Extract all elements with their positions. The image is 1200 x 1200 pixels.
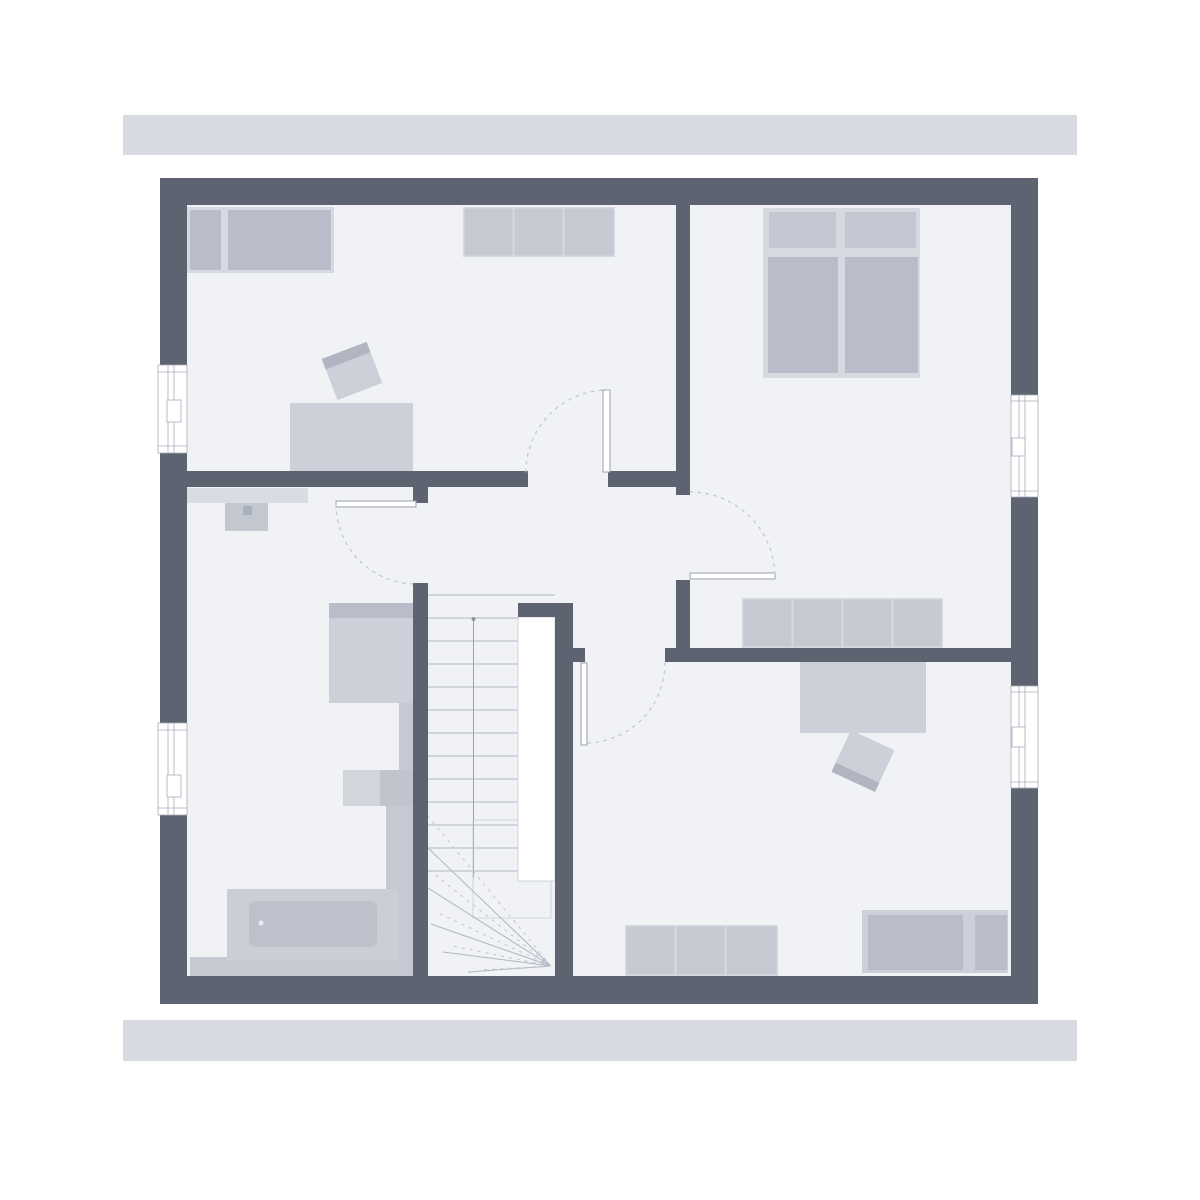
- window-handle: [1012, 438, 1025, 456]
- wall-interior-horizontal-right: [665, 648, 1011, 662]
- wall-interior-horizontal-right-stub: [573, 648, 585, 662]
- bed-pillow: [769, 212, 836, 248]
- window-handle: [167, 775, 181, 797]
- wall-interior-horizontal-left: [187, 471, 528, 487]
- wall-outer-right-upper: [1011, 178, 1038, 395]
- desk-top-left-room: [290, 403, 413, 471]
- wall-outer-top: [160, 178, 1038, 205]
- stair-walk-start-dot: [472, 617, 476, 621]
- wall-outer-left-lower: [160, 815, 187, 1004]
- window-right-upper: [1011, 395, 1038, 497]
- door-leaf-top-left-room: [603, 390, 610, 472]
- door-leaf-bathroom: [336, 501, 416, 507]
- window-handle: [167, 400, 181, 422]
- wall-interior-vertical-center: [676, 205, 690, 495]
- washer-body: [329, 618, 413, 703]
- dresser-bottom-cell: [627, 927, 675, 975]
- window-left-lower: [158, 723, 187, 815]
- window-handle: [1012, 727, 1025, 747]
- window-right-lower: [1011, 686, 1038, 788]
- dresser-bottom-cell: [677, 927, 725, 975]
- wall-outer-left-middle: [160, 453, 187, 723]
- roof-edge-top: [123, 115, 1077, 155]
- wall-outer-bottom: [160, 976, 1038, 1004]
- wardrobe-top-middle-cell: [515, 209, 563, 256]
- bed-mattress: [845, 257, 918, 373]
- window-left-upper: [158, 365, 187, 453]
- toilet-cistern: [380, 770, 413, 806]
- door-leaf-top-right-room: [690, 573, 775, 579]
- toilet-bowl: [343, 770, 380, 806]
- plumbing-duct-upper: [399, 703, 413, 770]
- floor-plan-canvas: [0, 0, 1200, 1200]
- desk-bottom-right-panel: [975, 915, 1007, 970]
- wall-interior-horizontal-left-end: [608, 471, 676, 487]
- wardrobe-top-left-panel: [228, 210, 331, 270]
- bed-mattress: [768, 257, 838, 373]
- wall-stair-cap: [518, 603, 573, 617]
- wall-interior-vertical-center-stub: [676, 580, 690, 651]
- wardrobe-top-middle-cell: [465, 209, 513, 256]
- wall-stair-right: [555, 603, 573, 976]
- bed-pillow: [845, 212, 916, 248]
- sideboard-cell: [844, 600, 892, 647]
- bathtub-inner: [249, 901, 377, 947]
- washer-top-band: [329, 603, 413, 618]
- roof-edge-bottom: [123, 1020, 1077, 1061]
- wardrobe-top-left-panel: [190, 210, 221, 270]
- vanity-faucet: [243, 506, 252, 515]
- sideboard-cell: [794, 600, 842, 647]
- floor-plan-page: [0, 0, 1200, 1200]
- wall-bath-right: [413, 583, 428, 976]
- bathtub-drain: [259, 921, 264, 926]
- window-frame: [158, 723, 187, 815]
- desk-bottom-right-panel: [868, 915, 963, 970]
- table-bottom-right-room: [800, 662, 926, 733]
- wall-outer-right-lower: [1011, 788, 1038, 1004]
- dresser-bottom-cell: [727, 927, 777, 975]
- stair-void: [518, 617, 555, 881]
- vanity-counter: [187, 488, 308, 503]
- wall-outer-left-upper: [160, 178, 187, 365]
- sideboard-cell: [744, 600, 792, 647]
- wardrobe-top-middle-cell: [565, 209, 614, 256]
- wall-bath-stub: [413, 485, 428, 503]
- wall-outer-right-middle: [1011, 497, 1038, 686]
- sideboard-cell: [894, 600, 942, 647]
- door-leaf-bottom-right-room: [581, 663, 587, 745]
